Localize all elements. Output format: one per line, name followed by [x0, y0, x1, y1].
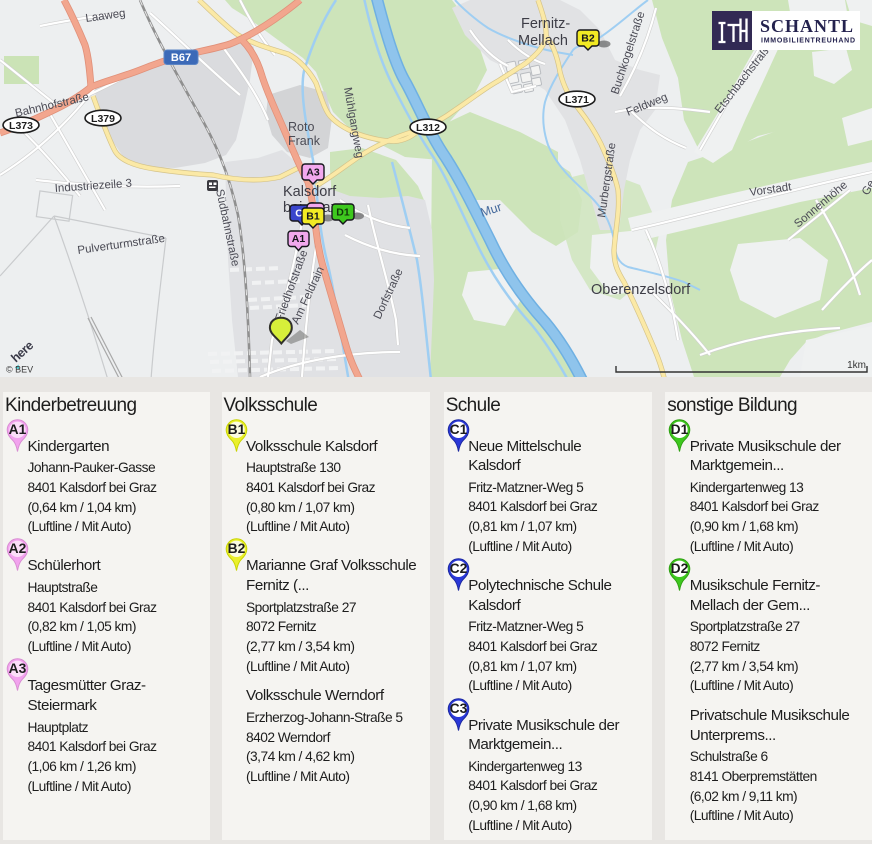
svg-text:A3: A3 — [9, 661, 27, 676]
svg-text:Oberenzelsdorf: Oberenzelsdorf — [591, 282, 691, 298]
svg-text:D1: D1 — [671, 421, 689, 436]
svg-text:A2: A2 — [9, 541, 27, 556]
svg-text:Kalsdorf: Kalsdorf — [283, 184, 337, 200]
svg-text:B1: B1 — [227, 421, 245, 436]
svg-text:Fernitz-: Fernitz- — [521, 16, 570, 32]
svg-text:B1: B1 — [306, 211, 320, 223]
svg-text:IMMOBILIENTREUHAND: IMMOBILIENTREUHAND — [761, 38, 856, 45]
svg-text:SCHANTL: SCHANTL — [760, 16, 854, 36]
svg-text:L312: L312 — [416, 122, 440, 134]
svg-text:L371: L371 — [565, 94, 589, 106]
svg-text:D1: D1 — [336, 207, 350, 219]
svg-text:A1: A1 — [292, 233, 306, 245]
svg-text:D2: D2 — [671, 561, 689, 576]
svg-text:Mellach: Mellach — [518, 33, 568, 49]
svg-text:B2: B2 — [227, 541, 245, 556]
svg-text:C3: C3 — [449, 700, 467, 715]
svg-text:L373: L373 — [9, 120, 33, 132]
svg-text:B2: B2 — [581, 33, 595, 45]
svg-text:1km: 1km — [847, 360, 866, 371]
svg-text:Roto: Roto — [288, 120, 314, 134]
svg-text:Frank: Frank — [288, 134, 321, 148]
svg-text:L379: L379 — [91, 113, 115, 125]
svg-text:B67: B67 — [171, 52, 191, 64]
svg-text:A3: A3 — [306, 167, 320, 179]
svg-text:© BEV: © BEV — [6, 365, 33, 375]
svg-text:C1: C1 — [449, 421, 467, 436]
svg-text:A1: A1 — [9, 421, 27, 436]
svg-text:C2: C2 — [449, 561, 467, 576]
